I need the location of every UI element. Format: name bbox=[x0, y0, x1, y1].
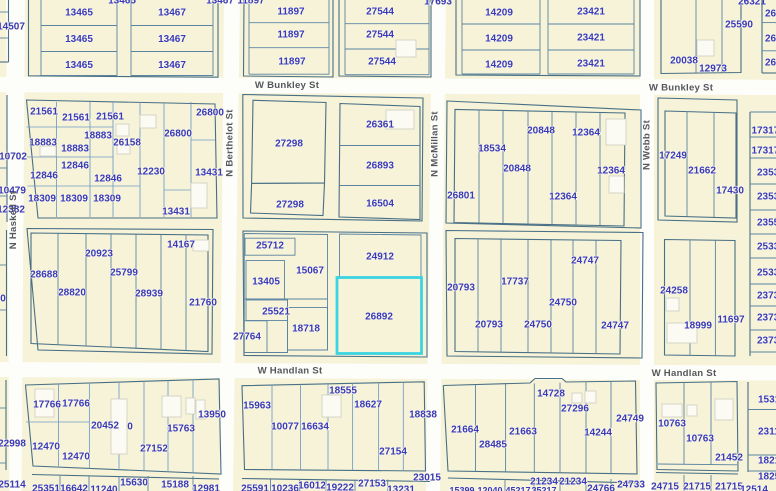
svg-text:25591: 25591 bbox=[241, 484, 269, 491]
svg-text:16504: 16504 bbox=[366, 199, 394, 210]
svg-text:20038: 20038 bbox=[670, 56, 698, 67]
svg-text:13465: 13465 bbox=[108, 0, 136, 7]
svg-text:26893: 26893 bbox=[366, 161, 394, 172]
svg-text:21561: 21561 bbox=[96, 112, 124, 123]
svg-text:17430: 17430 bbox=[716, 186, 744, 197]
svg-text:15188: 15188 bbox=[161, 480, 189, 491]
svg-text:13431: 13431 bbox=[195, 168, 223, 179]
svg-text:W Bunkley St: W Bunkley St bbox=[649, 83, 714, 94]
svg-text:13231: 13231 bbox=[387, 485, 415, 491]
svg-text:20793: 20793 bbox=[447, 283, 475, 294]
svg-text:14209: 14209 bbox=[485, 8, 513, 19]
svg-text:13950: 13950 bbox=[198, 410, 226, 421]
svg-text:17737: 17737 bbox=[501, 277, 529, 288]
svg-text:13467: 13467 bbox=[158, 60, 186, 71]
svg-text:21715: 21715 bbox=[715, 482, 743, 491]
svg-text:25114: 25114 bbox=[0, 480, 26, 491]
svg-text:12230: 12230 bbox=[137, 167, 165, 178]
svg-text:15630: 15630 bbox=[120, 478, 148, 489]
svg-text:15963: 15963 bbox=[243, 401, 271, 412]
svg-text:14507: 14507 bbox=[0, 22, 25, 33]
svg-text:27154: 27154 bbox=[379, 447, 407, 458]
svg-text:24733: 24733 bbox=[617, 480, 645, 491]
svg-text:21664: 21664 bbox=[451, 425, 479, 436]
svg-text:17317: 17317 bbox=[752, 126, 776, 137]
svg-text:16012: 16012 bbox=[298, 481, 326, 491]
svg-text:20793: 20793 bbox=[475, 320, 503, 331]
svg-text:18309: 18309 bbox=[28, 194, 56, 205]
svg-text:10763: 10763 bbox=[686, 434, 714, 445]
svg-text:18883: 18883 bbox=[84, 131, 112, 142]
svg-text:15067: 15067 bbox=[296, 266, 324, 277]
svg-text:13431: 13431 bbox=[162, 207, 190, 218]
svg-text:15311: 15311 bbox=[758, 395, 776, 406]
svg-text:W Handlan St: W Handlan St bbox=[258, 366, 323, 377]
svg-text:23731: 23731 bbox=[757, 336, 776, 347]
svg-text:26312: 26312 bbox=[765, 9, 776, 20]
svg-text:18211: 18211 bbox=[758, 456, 776, 467]
svg-text:12846: 12846 bbox=[61, 161, 89, 172]
svg-text:15399: 15399 bbox=[449, 486, 474, 491]
svg-text:24715: 24715 bbox=[651, 482, 679, 491]
svg-text:25331: 25331 bbox=[757, 268, 776, 279]
svg-text:22998: 22998 bbox=[0, 439, 26, 450]
svg-text:W Handlan St: W Handlan St bbox=[652, 368, 717, 379]
svg-text:10702: 10702 bbox=[0, 152, 27, 163]
svg-text:12364: 12364 bbox=[597, 166, 625, 177]
svg-text:25351: 25351 bbox=[32, 484, 60, 491]
svg-text:45217: 45217 bbox=[505, 486, 530, 491]
svg-text:26892: 26892 bbox=[365, 312, 393, 323]
svg-text:21452: 21452 bbox=[715, 453, 743, 464]
svg-text:35217: 35217 bbox=[531, 486, 556, 491]
svg-text:25590: 25590 bbox=[725, 20, 753, 31]
svg-text:23421: 23421 bbox=[577, 59, 605, 70]
svg-text:18718: 18718 bbox=[292, 324, 320, 335]
svg-text:18883: 18883 bbox=[29, 138, 57, 149]
svg-text:13467: 13467 bbox=[206, 0, 234, 7]
svg-text:13467: 13467 bbox=[158, 8, 186, 19]
svg-text:27544: 27544 bbox=[366, 7, 394, 18]
svg-text:12973: 12973 bbox=[699, 64, 727, 75]
svg-text:24912: 24912 bbox=[366, 252, 394, 263]
svg-text:27764: 27764 bbox=[233, 332, 261, 343]
svg-text:26801: 26801 bbox=[447, 191, 475, 202]
svg-text:26361: 26361 bbox=[366, 120, 394, 131]
svg-text:23111: 23111 bbox=[758, 427, 776, 438]
svg-text:W Bunkley St: W Bunkley St bbox=[255, 80, 320, 91]
svg-text:11897: 11897 bbox=[277, 30, 305, 41]
svg-text:0: 0 bbox=[0, 294, 6, 305]
svg-text:28939: 28939 bbox=[135, 289, 163, 300]
svg-text:21663: 21663 bbox=[509, 427, 537, 438]
svg-text:26800: 26800 bbox=[164, 129, 192, 140]
svg-text:12846: 12846 bbox=[94, 174, 122, 185]
svg-text:24750: 24750 bbox=[549, 298, 577, 309]
svg-text:28688: 28688 bbox=[30, 270, 58, 281]
svg-text:12981: 12981 bbox=[192, 484, 220, 491]
svg-text:20923: 20923 bbox=[85, 249, 113, 260]
svg-text:28820: 28820 bbox=[58, 288, 86, 299]
svg-text:21760: 21760 bbox=[189, 298, 217, 309]
svg-text:20452: 20452 bbox=[91, 421, 119, 432]
svg-text:13465: 13465 bbox=[65, 34, 93, 45]
svg-text:18627: 18627 bbox=[354, 400, 382, 411]
svg-text:27298: 27298 bbox=[275, 139, 303, 150]
svg-text:12040: 12040 bbox=[477, 486, 502, 491]
svg-text:23533: 23533 bbox=[757, 192, 776, 203]
svg-text:24766: 24766 bbox=[587, 484, 615, 491]
svg-text:10236: 10236 bbox=[271, 484, 299, 491]
svg-text:18838: 18838 bbox=[409, 410, 437, 421]
svg-text:14209: 14209 bbox=[485, 60, 513, 71]
svg-text:10763: 10763 bbox=[658, 419, 686, 430]
svg-text:11697: 11697 bbox=[717, 315, 745, 326]
svg-text:24749: 24749 bbox=[616, 414, 644, 425]
svg-text:21561: 21561 bbox=[30, 107, 58, 118]
svg-text:26158: 26158 bbox=[113, 138, 141, 149]
svg-text:21715: 21715 bbox=[683, 482, 711, 491]
svg-text:24747: 24747 bbox=[601, 321, 629, 332]
svg-text:11897: 11897 bbox=[277, 7, 305, 18]
svg-text:13465: 13465 bbox=[65, 8, 93, 19]
svg-text:24747: 24747 bbox=[571, 256, 599, 267]
svg-text:11897: 11897 bbox=[278, 57, 306, 68]
svg-text:17249: 17249 bbox=[659, 151, 687, 162]
svg-text:17317: 17317 bbox=[752, 146, 776, 157]
svg-text:14244: 14244 bbox=[584, 428, 612, 439]
svg-text:11240: 11240 bbox=[90, 485, 118, 491]
svg-text:18309: 18309 bbox=[60, 194, 88, 205]
svg-text:12514: 12514 bbox=[740, 485, 768, 491]
svg-text:N Webb St: N Webb St bbox=[642, 119, 653, 170]
svg-text:0: 0 bbox=[127, 422, 133, 433]
svg-text:23533: 23533 bbox=[757, 168, 776, 179]
svg-text:17766: 17766 bbox=[33, 400, 61, 411]
svg-text:25712: 25712 bbox=[256, 241, 284, 252]
svg-text:19222: 19222 bbox=[326, 483, 354, 491]
svg-text:N Berthelot St: N Berthelot St bbox=[225, 109, 236, 177]
svg-text:21662: 21662 bbox=[688, 166, 716, 177]
svg-text:18999: 18999 bbox=[684, 321, 712, 332]
svg-text:20848: 20848 bbox=[503, 164, 531, 175]
svg-text:21234: 21234 bbox=[559, 477, 587, 488]
svg-text:18555: 18555 bbox=[329, 386, 357, 397]
svg-text:12364: 12364 bbox=[549, 192, 577, 203]
svg-text:18534: 18534 bbox=[478, 144, 506, 155]
svg-text:21561: 21561 bbox=[62, 113, 90, 124]
svg-text:24750: 24750 bbox=[524, 320, 552, 331]
svg-text:18883: 18883 bbox=[61, 144, 89, 155]
svg-text:12846: 12846 bbox=[30, 171, 58, 182]
svg-text:24258: 24258 bbox=[660, 286, 688, 297]
svg-text:13405: 13405 bbox=[252, 277, 280, 288]
svg-text:12364: 12364 bbox=[572, 128, 600, 139]
svg-text:17766: 17766 bbox=[62, 399, 90, 410]
svg-text:26800: 26800 bbox=[196, 108, 224, 119]
svg-text:27544: 27544 bbox=[366, 30, 394, 41]
svg-text:13465: 13465 bbox=[65, 60, 93, 71]
svg-text:23015: 23015 bbox=[413, 473, 441, 484]
svg-text:11897: 11897 bbox=[237, 0, 265, 7]
svg-text:23421: 23421 bbox=[577, 7, 605, 18]
svg-text:16642: 16642 bbox=[60, 484, 88, 491]
svg-text:27298: 27298 bbox=[276, 200, 304, 211]
svg-text:12470: 12470 bbox=[32, 442, 60, 453]
svg-text:25331: 25331 bbox=[757, 242, 776, 253]
svg-text:27152: 27152 bbox=[140, 444, 168, 455]
svg-text:27296: 27296 bbox=[561, 404, 589, 415]
svg-text:15763: 15763 bbox=[167, 424, 195, 435]
svg-text:26313: 26313 bbox=[765, 34, 776, 45]
svg-text:27153: 27153 bbox=[358, 479, 386, 490]
svg-text:14209: 14209 bbox=[485, 34, 513, 45]
svg-text:25799: 25799 bbox=[110, 268, 138, 279]
svg-text:27544: 27544 bbox=[368, 57, 396, 68]
svg-text:23731: 23731 bbox=[757, 313, 776, 324]
svg-text:14167: 14167 bbox=[167, 240, 195, 251]
svg-text:13467: 13467 bbox=[158, 34, 186, 45]
svg-text:N Haskell St: N Haskell St bbox=[8, 190, 19, 249]
svg-text:12470: 12470 bbox=[62, 452, 90, 463]
svg-text:18309: 18309 bbox=[93, 194, 121, 205]
svg-text:23551: 23551 bbox=[757, 218, 776, 229]
svg-text:23731: 23731 bbox=[757, 291, 776, 302]
svg-text:20848: 20848 bbox=[527, 126, 555, 137]
svg-text:16634: 16634 bbox=[301, 422, 329, 433]
svg-text:28485: 28485 bbox=[479, 440, 507, 451]
svg-text:14728: 14728 bbox=[537, 389, 565, 400]
svg-text:26314: 26314 bbox=[765, 58, 776, 69]
svg-text:18251: 18251 bbox=[758, 472, 776, 483]
svg-text:23421: 23421 bbox=[577, 33, 605, 44]
svg-text:17693: 17693 bbox=[424, 0, 452, 8]
svg-text:N McMillan St: N McMillan St bbox=[430, 111, 441, 177]
svg-text:25521: 25521 bbox=[262, 307, 290, 318]
svg-text:10077: 10077 bbox=[271, 422, 299, 433]
